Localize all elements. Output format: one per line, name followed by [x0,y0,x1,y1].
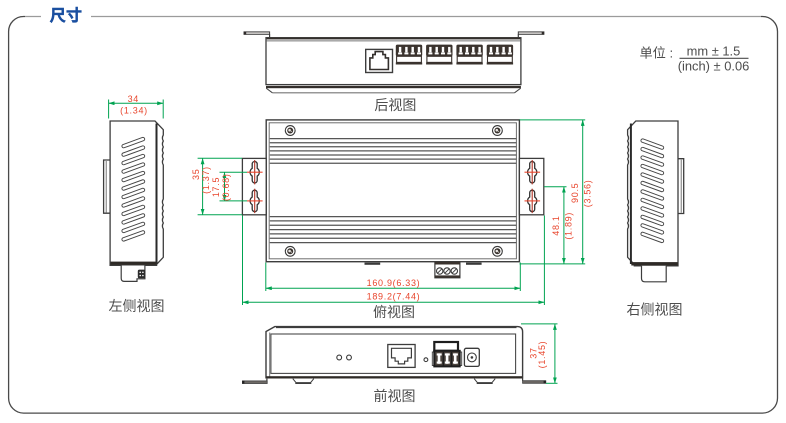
svg-text:189.2(7.44): 189.2(7.44) [367,292,421,302]
svg-text:右侧视图: 右侧视图 [627,302,683,318]
svg-text:后视图: 后视图 [374,97,416,113]
svg-text:前视图: 前视图 [374,388,416,404]
svg-text:(1.45): (1.45) [537,341,547,369]
svg-text:(3.56): (3.56) [582,180,592,208]
svg-text:35: 35 [191,169,201,180]
svg-text:俯视图: 俯视图 [373,304,415,320]
svg-text:48.1: 48.1 [551,215,561,235]
svg-text:左侧视图: 左侧视图 [109,298,165,314]
svg-text:尺寸: 尺寸 [50,5,83,24]
svg-text:160.9(6.33): 160.9(6.33) [367,278,421,288]
svg-text:90.5: 90.5 [570,183,580,203]
svg-text:(1.89): (1.89) [564,212,574,240]
svg-text:17.5: 17.5 [211,177,221,197]
svg-text:(0.68): (0.68) [221,173,231,201]
svg-text:mm ± 1.5: mm ± 1.5 [687,43,741,58]
svg-text:单位 :: 单位 : [640,46,674,61]
svg-text:(1.34): (1.34) [120,105,148,115]
svg-text:34: 34 [128,94,139,104]
svg-text:(inch) ± 0.06: (inch) ± 0.06 [678,58,750,73]
svg-text:(1.37): (1.37) [201,166,211,194]
